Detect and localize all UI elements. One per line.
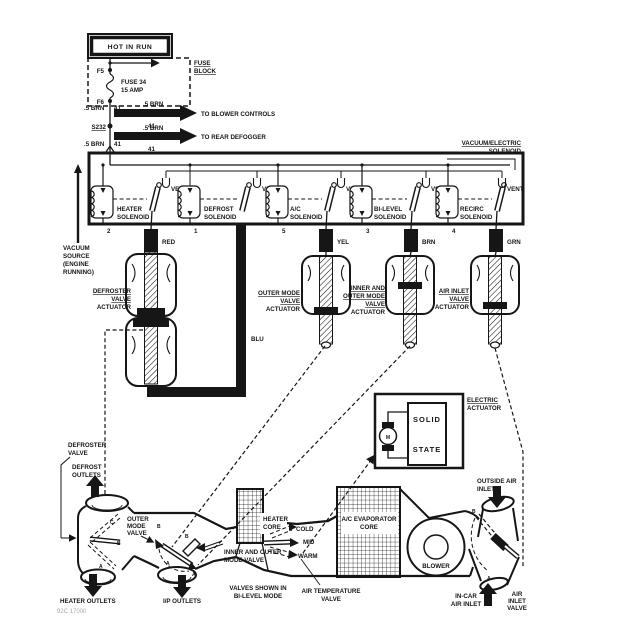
svg-text:ELECTRIC: ELECTRIC: [467, 397, 498, 404]
svg-text:A/C: A/C: [290, 206, 301, 213]
svg-text:OUTSIDE AIR: OUTSIDE AIR: [477, 478, 517, 485]
power-feed-section: HOT IN RUN FUSE BLOCK F5 FUSE 34 15 AMP …: [84, 34, 275, 153]
terminal-f5: [108, 68, 112, 72]
actuator-shaft: [489, 256, 502, 344]
fuse-block-label-2: BLOCK: [194, 68, 217, 75]
svg-text:STATE: STATE: [413, 445, 441, 454]
yel-hose: [319, 229, 333, 252]
svg-text:AIR TEMPERATURE: AIR TEMPERATURE: [301, 588, 360, 595]
heater-core: [237, 489, 263, 543]
svg-text:VALVE: VALVE: [280, 298, 300, 305]
svg-text:41: 41: [114, 141, 121, 148]
svg-text:HEATER: HEATER: [263, 516, 289, 523]
svg-text:OUTER MODE: OUTER MODE: [258, 290, 300, 297]
defrost-outlet-opening: [86, 495, 128, 511]
svg-text:MODE: MODE: [127, 523, 146, 530]
svg-text:.5 BRN: .5 BRN: [84, 141, 105, 148]
defroster-valve: [88, 514, 120, 569]
svg-text:VENT: VENT: [507, 186, 524, 193]
fuse-label-1: FUSE 34: [121, 79, 147, 86]
terminal-number: 5: [282, 228, 286, 235]
svg-text:ACTUATOR: ACTUATOR: [351, 309, 386, 316]
terminal-number: 3: [366, 228, 370, 235]
terminal-number: 1: [194, 228, 198, 235]
svg-text:ACTUATOR: ACTUATOR: [266, 306, 301, 313]
position-letter: B: [157, 524, 161, 530]
position-letter: B: [117, 541, 121, 547]
electric-actuator: SOLID STATE M ELECTRIC ACTUATOR: [303, 394, 502, 553]
svg-text:HEATER: HEATER: [117, 206, 143, 213]
svg-text:BLOWER: BLOWER: [422, 563, 450, 570]
svg-text:INNER AND OUTER: INNER AND OUTER: [224, 549, 282, 556]
svg-text:(ENGINE: (ENGINE: [63, 261, 89, 268]
svg-text:RECIRC: RECIRC: [460, 206, 484, 213]
air-inlet-valve-actuator: AIR INLET VALVE ACTUATOR: [435, 252, 519, 348]
svg-text:SOLENOID: SOLENOID: [117, 214, 150, 221]
svg-text:VALVE: VALVE: [127, 530, 147, 537]
brn-hose: [404, 229, 418, 252]
svg-text:OUTER MODE: OUTER MODE: [343, 293, 385, 300]
svg-text:VACUUM: VACUUM: [63, 245, 90, 252]
solenoid-box-title-1: VACUUM/ELECTRIC: [462, 140, 522, 147]
svg-text:OUTER: OUTER: [127, 516, 149, 523]
fuse-symbol: [107, 74, 114, 98]
terminal-f5-label: F5: [97, 68, 105, 75]
diagram-canvas: HOT IN RUN FUSE BLOCK F5 FUSE 34 15 AMP …: [0, 0, 631, 618]
svg-text:DEFROST: DEFROST: [204, 206, 234, 213]
svg-text:SOLENOID: SOLENOID: [204, 214, 237, 221]
svg-text:SOLENOID: SOLENOID: [374, 214, 407, 221]
to-rear-defogger-label: TO REAR DEFOGGER: [201, 134, 266, 141]
svg-text:VALVE: VALVE: [365, 301, 385, 308]
svg-text:ACTUATOR: ACTUATOR: [97, 304, 132, 311]
svg-text:ACTUATOR: ACTUATOR: [467, 405, 502, 412]
svg-text:ACTUATOR: ACTUATOR: [435, 304, 470, 311]
position-letter: A: [487, 576, 491, 582]
svg-text:DEFROST: DEFROST: [72, 464, 102, 471]
svg-text:INLET: INLET: [477, 486, 495, 493]
svg-text:.5 BRN: .5 BRN: [143, 125, 164, 132]
fuse-block-label-1: FUSE: [194, 60, 211, 67]
svg-text:HEATER OUTLETS: HEATER OUTLETS: [60, 598, 116, 605]
hot-in-run-label: HOT IN RUN: [108, 44, 153, 51]
svg-text:.5 BRN: .5 BRN: [143, 101, 164, 108]
outer-mode-valve-actuator: OUTER MODE VALVE ACTUATOR: [258, 252, 350, 348]
svg-text:CORE: CORE: [263, 524, 281, 531]
svg-text:RUNNING): RUNNING): [63, 269, 94, 276]
svg-text:SOURCE: SOURCE: [63, 253, 89, 260]
terminal-number: 2: [107, 228, 111, 235]
air-inlet-linkage: [495, 348, 523, 568]
svg-text:VALVE: VALVE: [111, 296, 131, 303]
position-letter: A: [99, 564, 103, 570]
red-hose: [144, 229, 158, 252]
to-blower-controls-label: TO BLOWER CONTROLS: [201, 111, 275, 118]
svg-text:BRN: BRN: [422, 239, 436, 246]
svg-text:SOLENOID: SOLENOID: [460, 214, 493, 221]
actuator-shaft: [404, 256, 417, 344]
svg-text:DEFROSTER: DEFROSTER: [93, 288, 132, 295]
position-letter: A: [166, 561, 170, 567]
svg-text:DEFROSTER: DEFROSTER: [68, 442, 107, 449]
svg-text:A/C EVAPORATOR: A/C EVAPORATOR: [341, 516, 397, 523]
splice-s232: [108, 124, 113, 129]
fuse-label-2: 15 AMP: [121, 87, 143, 94]
solid-state-module: [408, 403, 446, 465]
svg-text:VALVE: VALVE: [449, 296, 469, 303]
ip-outlet-opening: [158, 567, 196, 583]
svg-text:VALVE: VALVE: [321, 596, 341, 603]
svg-text:MID: MID: [303, 539, 315, 546]
grn-hose: [489, 229, 503, 252]
svg-text:IN-CAR: IN-CAR: [455, 593, 477, 600]
svg-text:VALVE: VALVE: [507, 605, 527, 612]
svg-text:INNER AND: INNER AND: [351, 285, 386, 292]
svg-text:GRN: GRN: [507, 239, 521, 246]
svg-text:VALVES SHOWN IN: VALVES SHOWN IN: [229, 585, 287, 592]
inner-outer-mode-valve-actuator: INNER AND OUTER MODE VALVE ACTUATOR: [343, 252, 434, 348]
svg-text:YEL: YEL: [337, 239, 349, 246]
svg-text:AIR: AIR: [512, 591, 523, 598]
svg-text:INLET: INLET: [508, 598, 526, 605]
svg-text:SOLID: SOLID: [413, 415, 441, 424]
svg-text:COLD: COLD: [296, 526, 314, 533]
svg-text:MODE VALVE: MODE VALVE: [224, 557, 264, 564]
air-inlet-valve: [471, 514, 518, 571]
terminal-number: 4: [452, 228, 456, 235]
splice-s232-label: S232: [92, 124, 107, 131]
vacuum-electric-hvac-diagram: HOT IN RUN FUSE BLOCK F5 FUSE 34 15 AMP …: [0, 0, 631, 618]
svg-text:OUTLETS: OUTLETS: [72, 472, 101, 479]
position-letter: B: [185, 534, 189, 540]
svg-text:SOLENOID: SOLENOID: [290, 214, 323, 221]
figure-number: 92C 17000: [57, 609, 87, 615]
heater-outlet-opening: [81, 570, 115, 585]
svg-text:AIR INLET: AIR INLET: [439, 288, 469, 295]
svg-text:I/P OUTLETS: I/P OUTLETS: [163, 598, 201, 605]
svg-text:BI-LEVEL: BI-LEVEL: [374, 206, 402, 213]
svg-text:BI-LEVEL MODE: BI-LEVEL MODE: [234, 593, 282, 600]
position-letter: B: [472, 509, 476, 515]
svg-text:BLU: BLU: [251, 336, 264, 343]
svg-text:M: M: [386, 435, 390, 441]
actuator-shaft: [320, 256, 333, 344]
svg-text:VALVE: VALVE: [68, 450, 88, 457]
position-letter: C: [110, 520, 114, 526]
position-letter: A: [192, 572, 196, 578]
svg-text:RED: RED: [162, 239, 176, 246]
svg-text:WARM: WARM: [298, 553, 318, 560]
svg-text:CORE: CORE: [360, 524, 378, 531]
svg-text:AIR INLET: AIR INLET: [451, 601, 481, 608]
wire-label: .5 BRN: [84, 105, 105, 112]
inner-outer-mode-valve: [183, 539, 223, 556]
